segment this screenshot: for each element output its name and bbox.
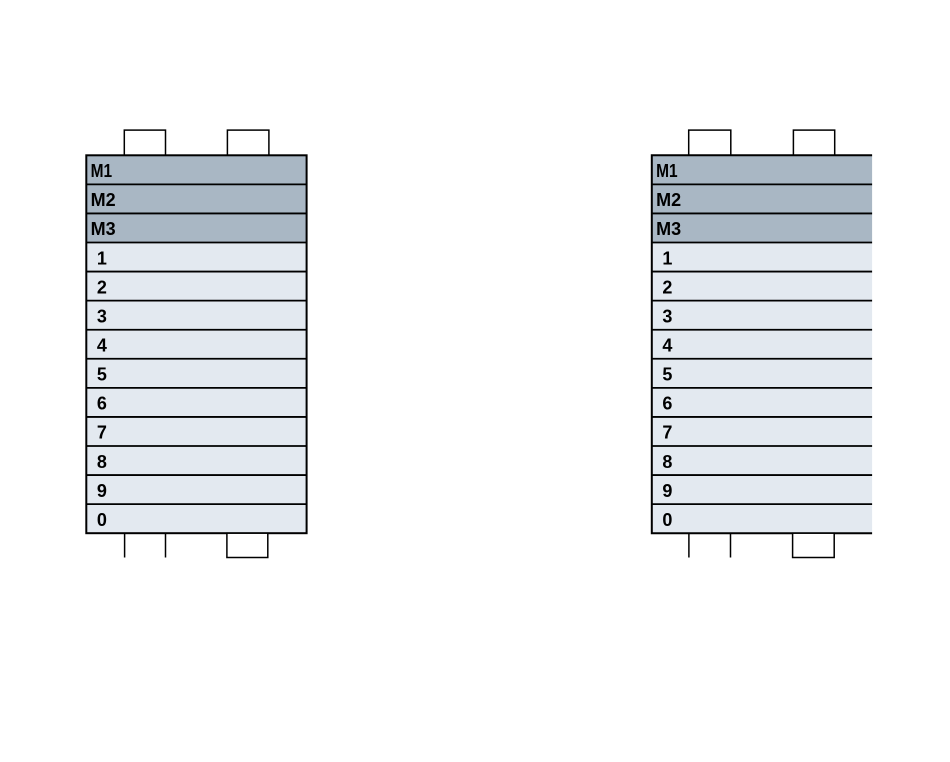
svg-text:4: 4: [662, 336, 672, 356]
svg-text:1: 1: [662, 248, 672, 268]
svg-text:9: 9: [662, 481, 672, 501]
svg-text:2: 2: [97, 277, 107, 297]
svg-text:M1: M1: [91, 161, 113, 181]
svg-text:8: 8: [662, 452, 672, 472]
svg-text:M3: M3: [656, 219, 681, 239]
svg-text:7: 7: [662, 423, 672, 443]
svg-text:9: 9: [97, 481, 107, 501]
svg-text:6: 6: [97, 394, 107, 414]
svg-text:5: 5: [662, 365, 672, 385]
svg-text:M2: M2: [91, 190, 116, 210]
svg-text:5: 5: [97, 365, 107, 385]
svg-text:7: 7: [97, 423, 107, 443]
svg-text:4: 4: [97, 336, 107, 356]
svg-text:0: 0: [97, 510, 107, 530]
svg-text:3: 3: [662, 306, 672, 326]
svg-text:8: 8: [97, 452, 107, 472]
svg-text:0: 0: [662, 510, 672, 530]
svg-text:2: 2: [662, 277, 672, 297]
svg-text:M2: M2: [656, 190, 681, 210]
svg-text:6: 6: [662, 394, 672, 414]
svg-text:1: 1: [97, 248, 107, 268]
svg-text:3: 3: [97, 306, 107, 326]
svg-text:M3: M3: [91, 219, 116, 239]
svg-text:M1: M1: [656, 161, 678, 181]
